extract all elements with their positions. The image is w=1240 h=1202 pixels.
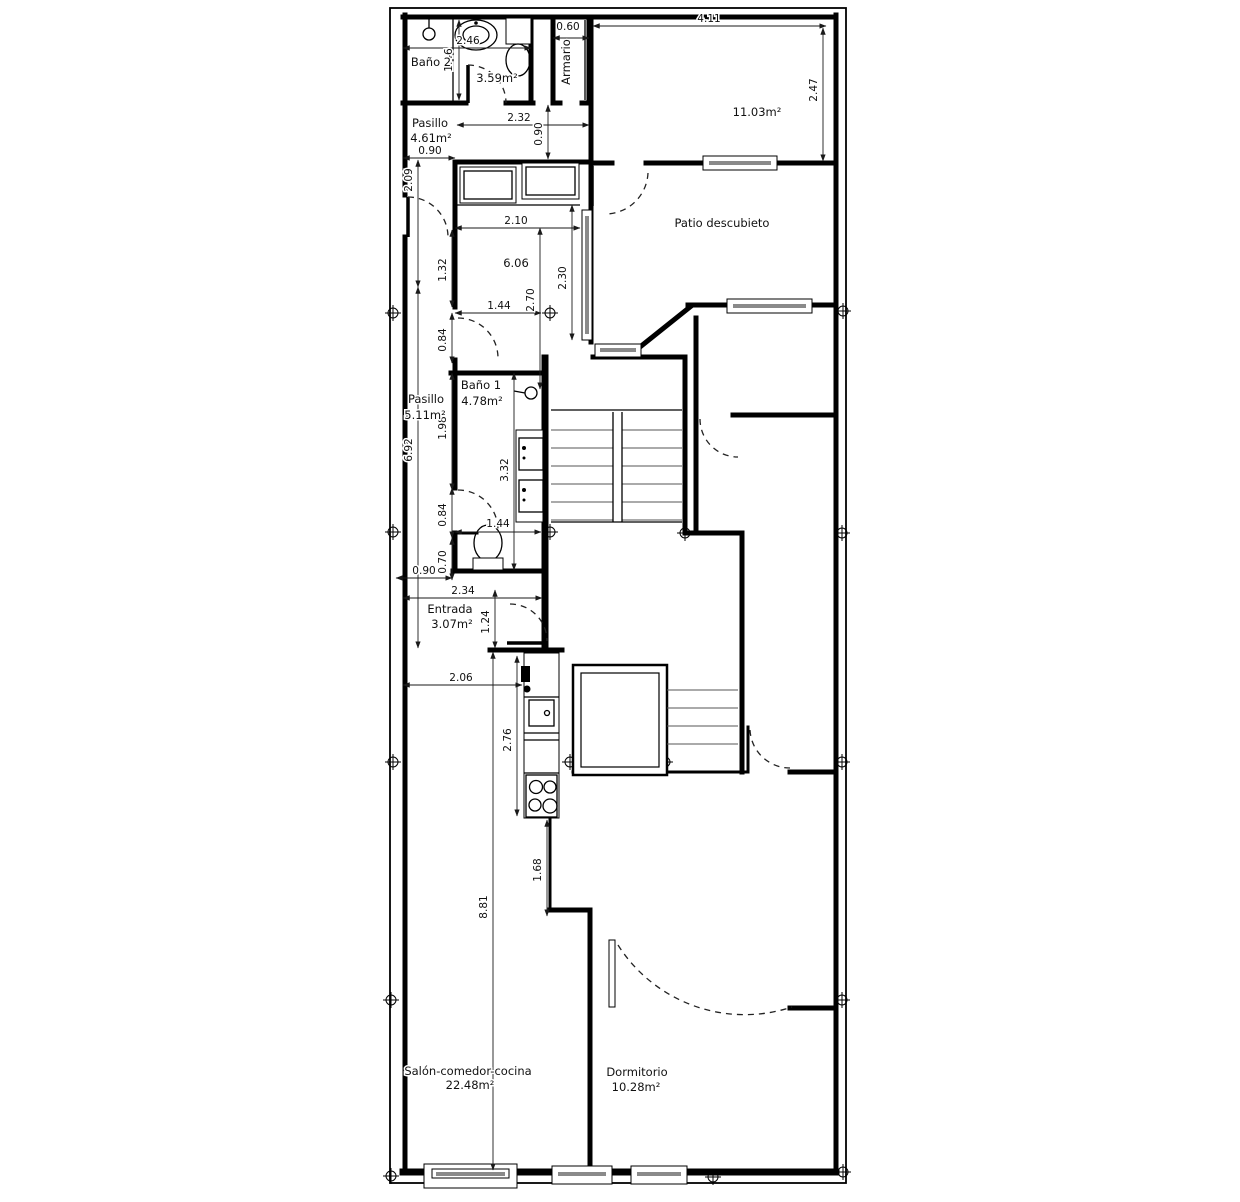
dim-4-11: 4.11 (697, 13, 720, 25)
room-area-entrada: 3.07m² (431, 617, 472, 631)
dim-1-32: 1.32 (437, 258, 449, 281)
kitchen-counter (521, 653, 559, 818)
dim-2-76: 2.76 (502, 728, 514, 752)
dim-1-44-a: 1.44 (487, 300, 511, 312)
room-label-entrada: Entrada (427, 602, 472, 616)
dim-1-44-b: 1.44 (486, 518, 510, 530)
room-label-pasillo-2: Pasillo (408, 392, 444, 406)
dim-0-70: 0.70 (437, 550, 449, 573)
faucet-icon (521, 666, 530, 682)
room-area-laundry: 6.06 (503, 256, 529, 270)
dim-2-30: 2.30 (557, 266, 569, 289)
dim-0-90-b: 0.90 (533, 122, 545, 145)
room-area-dormitorio: 10.28m² (612, 1080, 661, 1094)
dim-0-60: 0.60 (556, 21, 579, 33)
window-icon (703, 156, 777, 170)
room-area-top-right: 11.03m² (733, 105, 782, 119)
vanity-icon (516, 430, 543, 522)
floor-plan-page: 2.46 1.46 0.60 4.11 2.47 2.32 0.90 0.90 … (0, 0, 1240, 1202)
room-area-pasillo-2: 5.11m² (404, 408, 445, 422)
room-area-pasillo-1: 4.61m² (410, 131, 451, 145)
window-icon (552, 1166, 612, 1184)
dim-3-32: 3.32 (499, 458, 511, 481)
dim-8-81: 8.81 (478, 895, 490, 918)
room-label-armario: Armario (559, 39, 573, 85)
room-label-dormitorio: Dormitorio (606, 1065, 667, 1079)
room-area-salon: 22.48m² (446, 1078, 495, 1092)
dim-1-68: 1.68 (532, 858, 544, 881)
dim-0-84-a: 0.84 (437, 328, 449, 352)
room-area-bano2: 3.59m² (476, 71, 517, 85)
room-area-bano1: 4.78m² (461, 394, 502, 408)
dim-2-06: 2.06 (449, 672, 473, 684)
dim-2-34: 2.34 (451, 585, 475, 597)
room-label-pasillo-1: Pasillo (412, 116, 448, 130)
room-label-salon: Salón-comedor-cocina (404, 1064, 531, 1078)
dim-2-09: 2.09 (403, 168, 415, 191)
room-label-patio: Patio descubieto (675, 216, 770, 230)
window-icon (631, 1166, 687, 1184)
dim-2-10: 2.10 (504, 215, 527, 227)
window-icon (582, 210, 592, 340)
dim-1-24: 1.24 (480, 610, 492, 634)
dim-2-46: 2.46 (456, 35, 480, 47)
dim-2-47: 2.47 (808, 78, 820, 101)
bedroom-door-jamb (609, 940, 615, 1007)
window-icon (595, 344, 641, 357)
dim-2-32: 2.32 (507, 112, 530, 124)
dim-0-90-c: 0.90 (412, 565, 435, 577)
window-icon (424, 1164, 517, 1188)
dim-0-90-a: 0.90 (418, 145, 441, 157)
dim-6-92: 6.92 (403, 438, 415, 461)
window-icon (727, 299, 812, 313)
shaft (573, 665, 667, 775)
room-label-bano2: Baño 2 (411, 55, 451, 69)
washer-icon (522, 163, 579, 199)
dim-0-84-b: 0.84 (437, 503, 449, 527)
room-label-bano1: Baño 1 (461, 378, 501, 392)
washer-icon (460, 167, 516, 203)
dim-2-70: 2.70 (525, 288, 537, 311)
floor-plan-canvas: 2.46 1.46 0.60 4.11 2.47 2.32 0.90 0.90 … (0, 0, 1240, 1202)
